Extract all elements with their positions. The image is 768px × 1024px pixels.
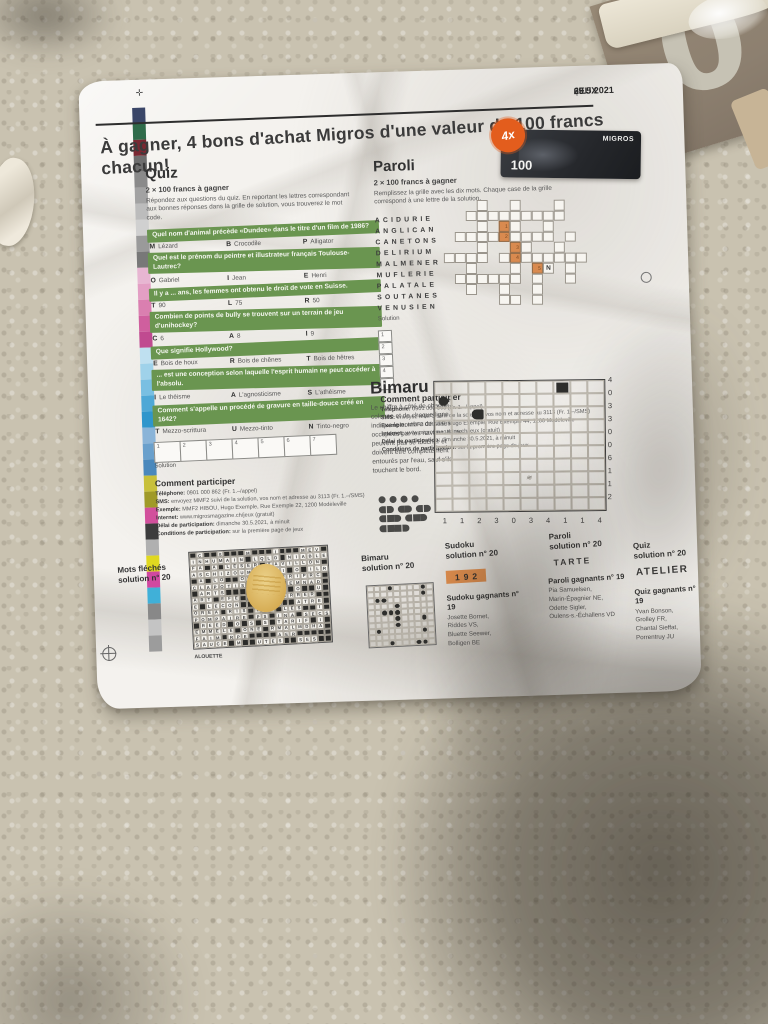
answer-letter: U [232, 426, 237, 433]
grid-cell [532, 294, 543, 305]
grid-cell [499, 263, 510, 274]
grid-cell [520, 485, 537, 498]
row-clue: 1 [608, 479, 612, 492]
grid-cell [435, 486, 452, 499]
grid-cell [477, 284, 488, 295]
grid-cell [554, 210, 565, 221]
grid-cell [455, 295, 466, 306]
answer-option: IJean [227, 272, 304, 281]
grid-cell [486, 446, 503, 459]
grid-cell [488, 221, 499, 232]
answer-letter: R [305, 297, 310, 304]
solution-cell: 1 [378, 329, 393, 342]
fleet-ship-icon [379, 505, 394, 512]
grid-cell [486, 420, 503, 433]
answer-text: Le théisme [159, 393, 190, 401]
grid-cell [576, 273, 587, 284]
grid-cell [576, 231, 587, 242]
answer-letter: O [150, 277, 156, 284]
grid-cell [553, 380, 570, 393]
answer-text: Mezzo-tinto [240, 424, 273, 432]
grid-cell [477, 273, 488, 284]
column-clue: 4 [539, 516, 556, 525]
ship-segment [420, 514, 427, 521]
grid-cell [452, 420, 469, 433]
solution-title: Paroli [548, 531, 571, 541]
winners-list: Yvan Bonson,Grolley FR,Chantal Sieffat,P… [635, 606, 702, 643]
answer-option: PAlligator [303, 236, 380, 245]
grid-cell [469, 485, 486, 498]
answer-text: Mezzo-scrittura [162, 426, 206, 434]
paroli-word: CANETONS [375, 235, 445, 248]
ship-dot-icon [382, 599, 387, 603]
grid-cell [488, 242, 499, 253]
quiz-intro: Répondez aux questions du quiz. En repor… [146, 191, 357, 223]
column-clue: 4 [591, 516, 608, 525]
grid-cell [486, 498, 503, 511]
grid-cell [565, 242, 576, 253]
grid-cell [503, 420, 520, 433]
grid-cell [499, 242, 510, 253]
ship-segment [379, 515, 386, 522]
grid-cell [455, 263, 466, 274]
winners-list: Pia Samuelsen,Marin-Épagnier NE,Odette S… [548, 585, 641, 623]
grid-cell [499, 210, 510, 221]
grid-cell [554, 252, 565, 263]
participate-label: Téléphone: [155, 490, 187, 497]
grid-cell [510, 294, 521, 305]
grid-cell [429, 638, 436, 644]
winner-line: Bolligen BE [448, 638, 528, 649]
grid-cell [510, 284, 521, 295]
grid-cell [537, 498, 554, 511]
answer-text: 50 [312, 297, 319, 304]
grid-cell [532, 210, 543, 221]
grid-cell [466, 284, 477, 295]
answer-option: UMezzo-tinto [232, 423, 309, 432]
grid-cell [532, 252, 543, 263]
grid-cell [532, 273, 543, 284]
grid-cell [469, 498, 486, 511]
badge-label: 4x [500, 127, 516, 144]
answer-option: R50 [305, 295, 382, 304]
bimaru-column-clues: 1123034114 [436, 516, 608, 526]
sudoku-digit: 9 [463, 571, 468, 581]
grid-cell [452, 485, 469, 498]
answer-text: 9 [310, 331, 314, 338]
grid-cell [554, 231, 565, 242]
answer-option: A8 [229, 331, 306, 340]
fleet-ship-icon [378, 496, 385, 503]
grid-cell [571, 471, 588, 484]
solution-cell: 3 [205, 438, 233, 460]
bimaru-solution-label: Bimaru solution n° 20 [361, 550, 432, 575]
answer-letter: A [231, 392, 236, 399]
grid-cell [451, 381, 468, 394]
winners-heading: Quiz gagnants n° 19 [634, 583, 701, 606]
ship-dot-icon [375, 599, 380, 603]
grid-cell [455, 274, 466, 285]
corner-shadow [0, 0, 120, 60]
quiz-question: ... est une conception selon laquelle l'… [151, 364, 384, 402]
grid-cell [503, 433, 520, 446]
answer-letter: C [152, 336, 157, 343]
answer-option: MLézard [149, 241, 226, 250]
grid-cell [435, 408, 452, 421]
solution-cell: 1 [153, 441, 181, 463]
grid-cell: 3 [510, 242, 521, 253]
ship-dot-icon [389, 610, 394, 614]
answer-option: RBois de chênes [230, 356, 307, 365]
grid-cell [536, 394, 553, 407]
column-clue: 1 [574, 516, 591, 525]
grid-cell [554, 263, 565, 274]
grid-row [444, 200, 598, 211]
grid-cell [576, 294, 587, 305]
grid-cell [444, 211, 455, 222]
grid-cell [537, 485, 554, 498]
newspaper-page: ✛ JEUX|25.5.2021|69 À gagner, 4 bons d'a… [78, 63, 701, 710]
solution-cell: 5 [257, 436, 285, 458]
ship-segment [389, 496, 396, 503]
grid-cell [486, 407, 503, 420]
grid-cell [588, 497, 605, 510]
grid-cell [554, 471, 571, 484]
bimaru-solution-grid [366, 582, 437, 648]
ship-circle-icon [438, 397, 448, 406]
grid-row [435, 497, 605, 512]
grid-cell: ≋ [520, 472, 537, 485]
grid-cell [503, 485, 520, 498]
ship-dot-icon [423, 627, 428, 631]
ship-dot-icon [395, 604, 400, 608]
grid-cell [503, 459, 520, 472]
ship-segment [405, 505, 412, 512]
answer-text: 8 [237, 333, 241, 340]
ship-segment [413, 514, 420, 521]
grid-cell [488, 200, 499, 211]
grid-cell [486, 472, 503, 485]
bimaru-grid: ≋ [433, 379, 606, 513]
grid-cell [502, 381, 519, 394]
grid-cell [488, 284, 499, 295]
fleet-ship-icon [405, 514, 427, 522]
grid-cell [571, 419, 588, 432]
row-clue: 6 [608, 453, 612, 466]
grid-cell [521, 263, 532, 274]
answer-option: EBois de houx [153, 358, 230, 367]
grid-cell: 1 [499, 221, 510, 232]
solution-cell: 4 [379, 365, 394, 378]
grid-cell [532, 284, 543, 295]
paroli-word-list: ACIDURIEANGLICANCANETONSDELIRIUMMALMENER… [375, 213, 448, 314]
answer-option: TMezzo-scrittura [155, 426, 232, 435]
solutions-row: Mots fléchés solution n° 20 CSMIMEVINHUM… [93, 522, 702, 709]
grid-row: 5N [444, 263, 598, 274]
grid-cell [565, 294, 576, 305]
answer-text: 90 [158, 302, 165, 309]
grid-cell: 2 [499, 231, 510, 242]
answer-letter: B [226, 241, 231, 248]
grid-cell [537, 459, 554, 472]
grid-cell [455, 253, 466, 264]
grid-cell [587, 263, 598, 274]
grid-cell [488, 210, 499, 221]
grid-cell [485, 394, 502, 407]
ship-dot-icon [423, 639, 428, 643]
grid-cell [451, 394, 468, 407]
answer-option: C6 [152, 333, 229, 342]
grid-cell [521, 210, 532, 221]
grid-cell [520, 433, 537, 446]
grid-cell [587, 210, 598, 221]
participate-lines: Téléphone: 0901 000 862 (Fr. 1.–/appel)S… [155, 482, 406, 538]
grid-cell [587, 242, 598, 253]
grid-cell [510, 210, 521, 221]
answer-option: ILe théisme [154, 392, 231, 401]
grid-cell [587, 393, 604, 406]
page-header: JEUX|25.5.2021|69 [409, 86, 574, 91]
answer-text: Gabriel [159, 276, 180, 284]
participate-text: sur la première page de jeux [232, 527, 303, 535]
grid-cell [543, 221, 554, 232]
grid-cell [576, 221, 587, 232]
answer-option: OGabriel [150, 275, 227, 284]
winner-line: Oulens-s.-Échallens VD [549, 611, 641, 623]
quiz-question: Quel est le prénom du peintre et illustr… [148, 246, 381, 284]
grid-cell [554, 458, 571, 471]
solution-cell: 2 [179, 439, 207, 461]
grid-cell [554, 484, 571, 497]
grid-cell [477, 210, 488, 221]
solution-cell: 7 [309, 433, 337, 455]
grid-cell [532, 242, 543, 253]
answer-text: Tinto-negro [316, 422, 349, 430]
crossword-note: ALOUETTE [194, 653, 222, 660]
grid-cell [510, 221, 521, 232]
fleet-ship-icon [389, 496, 396, 503]
answer-option: AL'agnosticisme [231, 390, 308, 399]
answer-letter: M [149, 243, 155, 250]
answer-text: Bois de houx [161, 359, 198, 367]
quiz-participate: Comment participer Téléphone: 0901 000 8… [155, 470, 407, 538]
grid-cell [469, 459, 486, 472]
grid-cell [588, 445, 605, 458]
grid-cell [588, 406, 605, 419]
fleet-ship-icon [379, 515, 401, 523]
grid-cell [477, 294, 488, 305]
grid-cell [444, 295, 455, 306]
answer-letter: A [229, 333, 234, 340]
grid-cell [466, 210, 477, 221]
paroli-solution-label: Paroli solution n° 20 [548, 527, 629, 552]
water-icon: ≋ [526, 477, 532, 481]
row-clue: 0 [608, 388, 612, 401]
grid-cell [455, 221, 466, 232]
fleet-ship-icon [411, 495, 418, 502]
grid-row [444, 294, 598, 305]
grid-cell [576, 263, 587, 274]
grid-cell [488, 231, 499, 242]
grid-cell [466, 273, 477, 284]
sudoku-digit: 2 [472, 571, 477, 581]
grid-cell [543, 294, 554, 305]
grid-cell [455, 284, 466, 295]
grid-cell [543, 210, 554, 221]
grid-cell [477, 263, 488, 274]
row-clue: 3 [608, 414, 612, 427]
solution-cell: 3 [379, 353, 394, 366]
grid-cell [565, 221, 576, 232]
answer-letter: I [227, 275, 229, 282]
grid-cell [571, 432, 588, 445]
grid-cell [554, 406, 571, 419]
ship-segment [387, 515, 394, 522]
grid-cell [565, 252, 576, 263]
grid-cell [435, 447, 452, 460]
ship-dot-icon [390, 641, 395, 645]
grid-cell [466, 221, 477, 232]
ship-segment [379, 506, 386, 513]
grid-cell [554, 445, 571, 458]
grid-cell [554, 419, 571, 432]
grid-cell [536, 381, 553, 394]
grid-row [444, 284, 598, 295]
registration-mark-icon: ✛ [136, 88, 146, 98]
answer-option: TBois de hêtres [306, 354, 383, 363]
ship-segment [379, 525, 386, 532]
grid-cell [588, 432, 605, 445]
grid-cell [499, 273, 510, 284]
grid-cell [452, 407, 469, 420]
grid-cell [521, 231, 532, 242]
grid-cell [444, 221, 455, 232]
row-clue: 3 [608, 401, 612, 414]
grid-cell [488, 273, 499, 284]
grid-cell [452, 446, 469, 459]
bimaru-grid-cells: ≋ [433, 379, 606, 513]
grid-row: 2 [444, 231, 598, 242]
ship-segment [402, 524, 409, 531]
solution-title: Bimaru [361, 552, 389, 563]
grid-cell [543, 231, 554, 242]
grid-cell [455, 242, 466, 253]
answer-text: Bois de chênes [238, 357, 282, 365]
column-clue: 3 [488, 516, 505, 525]
grid-cell [587, 231, 598, 242]
grid-cell [444, 263, 455, 274]
column-clue: 1 [436, 516, 453, 525]
solution-cell: 6 [283, 435, 311, 457]
grid-cell [576, 242, 587, 253]
grid-cell [576, 200, 587, 211]
grid-cell [576, 284, 587, 295]
grid-cell [503, 407, 520, 420]
grid-cell [434, 395, 451, 408]
ship-segment [416, 505, 423, 512]
ship-dot-icon [421, 585, 426, 589]
grid-cell [587, 294, 598, 305]
grid-cell [571, 484, 588, 497]
ship-dot-icon [377, 629, 382, 633]
quiz-solution-label: Quiz solution n° 20 [633, 537, 704, 562]
grid-cell [588, 419, 605, 432]
grid-cell [435, 499, 452, 512]
quiz-question: Que signifie Hollywood?EBois de houxRBoi… [151, 339, 384, 368]
grid-cell [576, 210, 587, 221]
grid-cell [587, 252, 598, 263]
grid-cell [543, 242, 554, 253]
answer-letter: S [307, 389, 312, 396]
paroli-grid: 12345N [444, 200, 598, 306]
ship-segment [394, 524, 401, 531]
answer-letter: E [304, 272, 309, 279]
grid-cell [452, 459, 469, 472]
grid-cell [466, 200, 477, 211]
grid-row [444, 210, 598, 221]
grid-cell [455, 211, 466, 222]
grid-cell [477, 200, 488, 211]
grid-cell [588, 471, 605, 484]
grid-cell [587, 380, 604, 393]
grid-cell [587, 200, 598, 211]
grid-cell [565, 210, 576, 221]
grid-cell [587, 273, 598, 284]
grid-cell [466, 263, 477, 274]
ship-dot-icon [422, 615, 427, 619]
grid-cell [571, 445, 588, 458]
grid-cell [435, 421, 452, 434]
grid-cell [469, 446, 486, 459]
grid-cell [510, 263, 521, 274]
grid-cell [510, 273, 521, 284]
participate-label: SMS: [155, 499, 171, 505]
column-clue: 1 [453, 516, 470, 525]
grid-cell [477, 221, 488, 232]
grid-cell [554, 273, 565, 284]
grid-cell [434, 382, 451, 395]
grid-row: 3 [444, 242, 598, 253]
grid-cell [571, 458, 588, 471]
answer-letter: T [306, 356, 310, 363]
answer-text: Bois de hêtres [314, 355, 355, 363]
grid-cell [554, 221, 565, 232]
grid-cell [537, 472, 554, 485]
quiz-solution-word: ATELIER [636, 564, 689, 578]
grid-cell [466, 231, 477, 242]
ship-dot-icon [421, 591, 426, 595]
ship-segment [387, 524, 394, 531]
grid-cell [521, 242, 532, 253]
grid-cell [537, 420, 554, 433]
row-clue: 0 [608, 440, 612, 453]
grid-cell [444, 242, 455, 253]
grid-cell [435, 434, 452, 447]
ship-dot-icon [396, 622, 401, 626]
grid-cell [444, 284, 455, 295]
grid-cell [468, 394, 485, 407]
paroli-solution-word: TARTE [553, 555, 591, 567]
row-clue: 0 [608, 427, 612, 440]
grid-cell [521, 294, 532, 305]
grid-cell [537, 433, 554, 446]
grid-cell [486, 459, 503, 472]
grid-cell [510, 200, 521, 211]
answer-letter: I [154, 394, 156, 401]
grid-cell [553, 393, 570, 406]
grid-cell: 5 [532, 263, 543, 274]
answer-letter: T [151, 302, 155, 309]
